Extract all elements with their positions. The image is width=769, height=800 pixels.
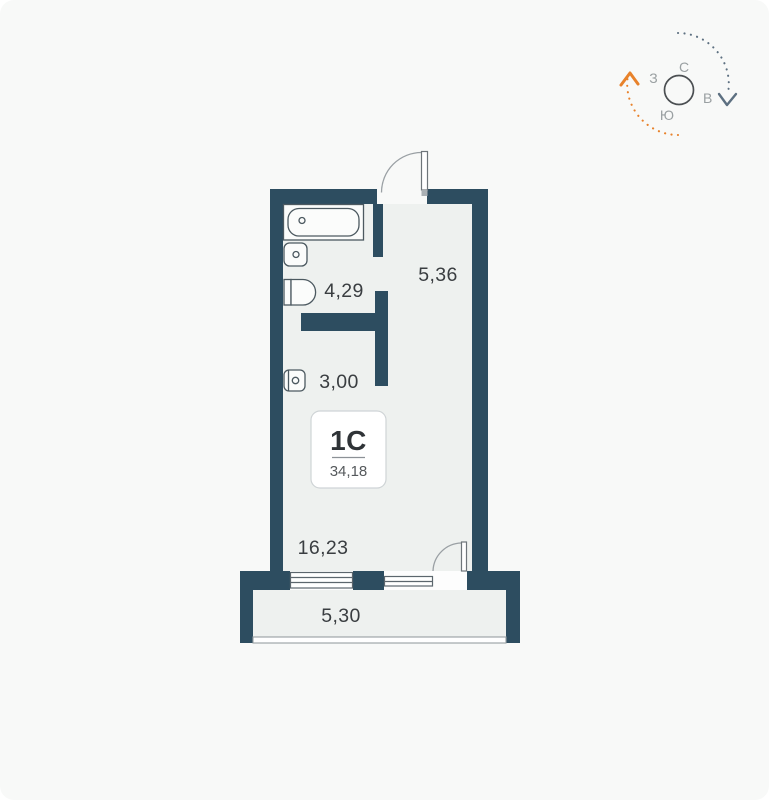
entry-door-hinge xyxy=(422,190,428,196)
wall-top-left xyxy=(270,189,377,204)
compass-ring xyxy=(665,76,694,105)
entry-door-leaf xyxy=(422,152,428,191)
room-label-balcony: 5,30 xyxy=(321,605,361,627)
compass: С З В Ю xyxy=(621,33,736,135)
room-label-living-room: 16,23 xyxy=(298,537,349,559)
unit-badge: 1С 34,18 xyxy=(311,411,386,488)
wall-bottom-nub xyxy=(467,571,472,590)
balcony-floor xyxy=(253,590,506,637)
compass-west-label: З xyxy=(649,70,657,86)
floor-plan-drawing: 4,29 5,36 3,00 16,23 5,30 1С 34,18 С З В… xyxy=(0,0,769,800)
floor-plan-card: 4,29 5,36 3,00 16,23 5,30 1С 34,18 С З В… xyxy=(0,0,769,800)
room-label-hallway: 5,36 xyxy=(418,264,458,286)
compass-south-label: Ю xyxy=(660,107,674,123)
compass-east-label: В xyxy=(703,90,712,106)
apartment-floor xyxy=(283,204,472,571)
rotate-clockwise-arrow-icon[interactable] xyxy=(719,94,736,105)
balcony-pillar-right-column xyxy=(506,571,520,643)
bathtub-basin xyxy=(288,209,359,237)
wall-right xyxy=(472,189,488,571)
balcony-glazing xyxy=(253,637,506,643)
wall-storage-top xyxy=(301,313,388,331)
toilet-tank xyxy=(284,280,291,306)
wall-bathroom-divider xyxy=(373,204,383,257)
wall-storage-right xyxy=(375,291,388,386)
window xyxy=(291,573,353,589)
unit-type-label: 1С xyxy=(330,425,367,456)
rotate-counterclockwise-arrow-icon[interactable] xyxy=(621,73,638,85)
room-label-storage: 3,00 xyxy=(319,371,359,393)
washing-machine-door xyxy=(292,377,298,383)
wall-left xyxy=(270,189,283,571)
toilet-bowl xyxy=(291,280,316,306)
balcony-door-leaf xyxy=(462,542,467,571)
sink-drain xyxy=(293,252,299,258)
entry-door-swing-arc xyxy=(382,153,422,193)
bathtub-drain xyxy=(299,218,305,224)
wall-bottom-mid xyxy=(353,571,384,590)
balcony-pillar-left-column xyxy=(240,571,253,643)
unit-area-label: 34,18 xyxy=(330,463,368,480)
room-label-bathroom: 4,29 xyxy=(324,280,364,302)
compass-north-label: С xyxy=(679,59,689,75)
